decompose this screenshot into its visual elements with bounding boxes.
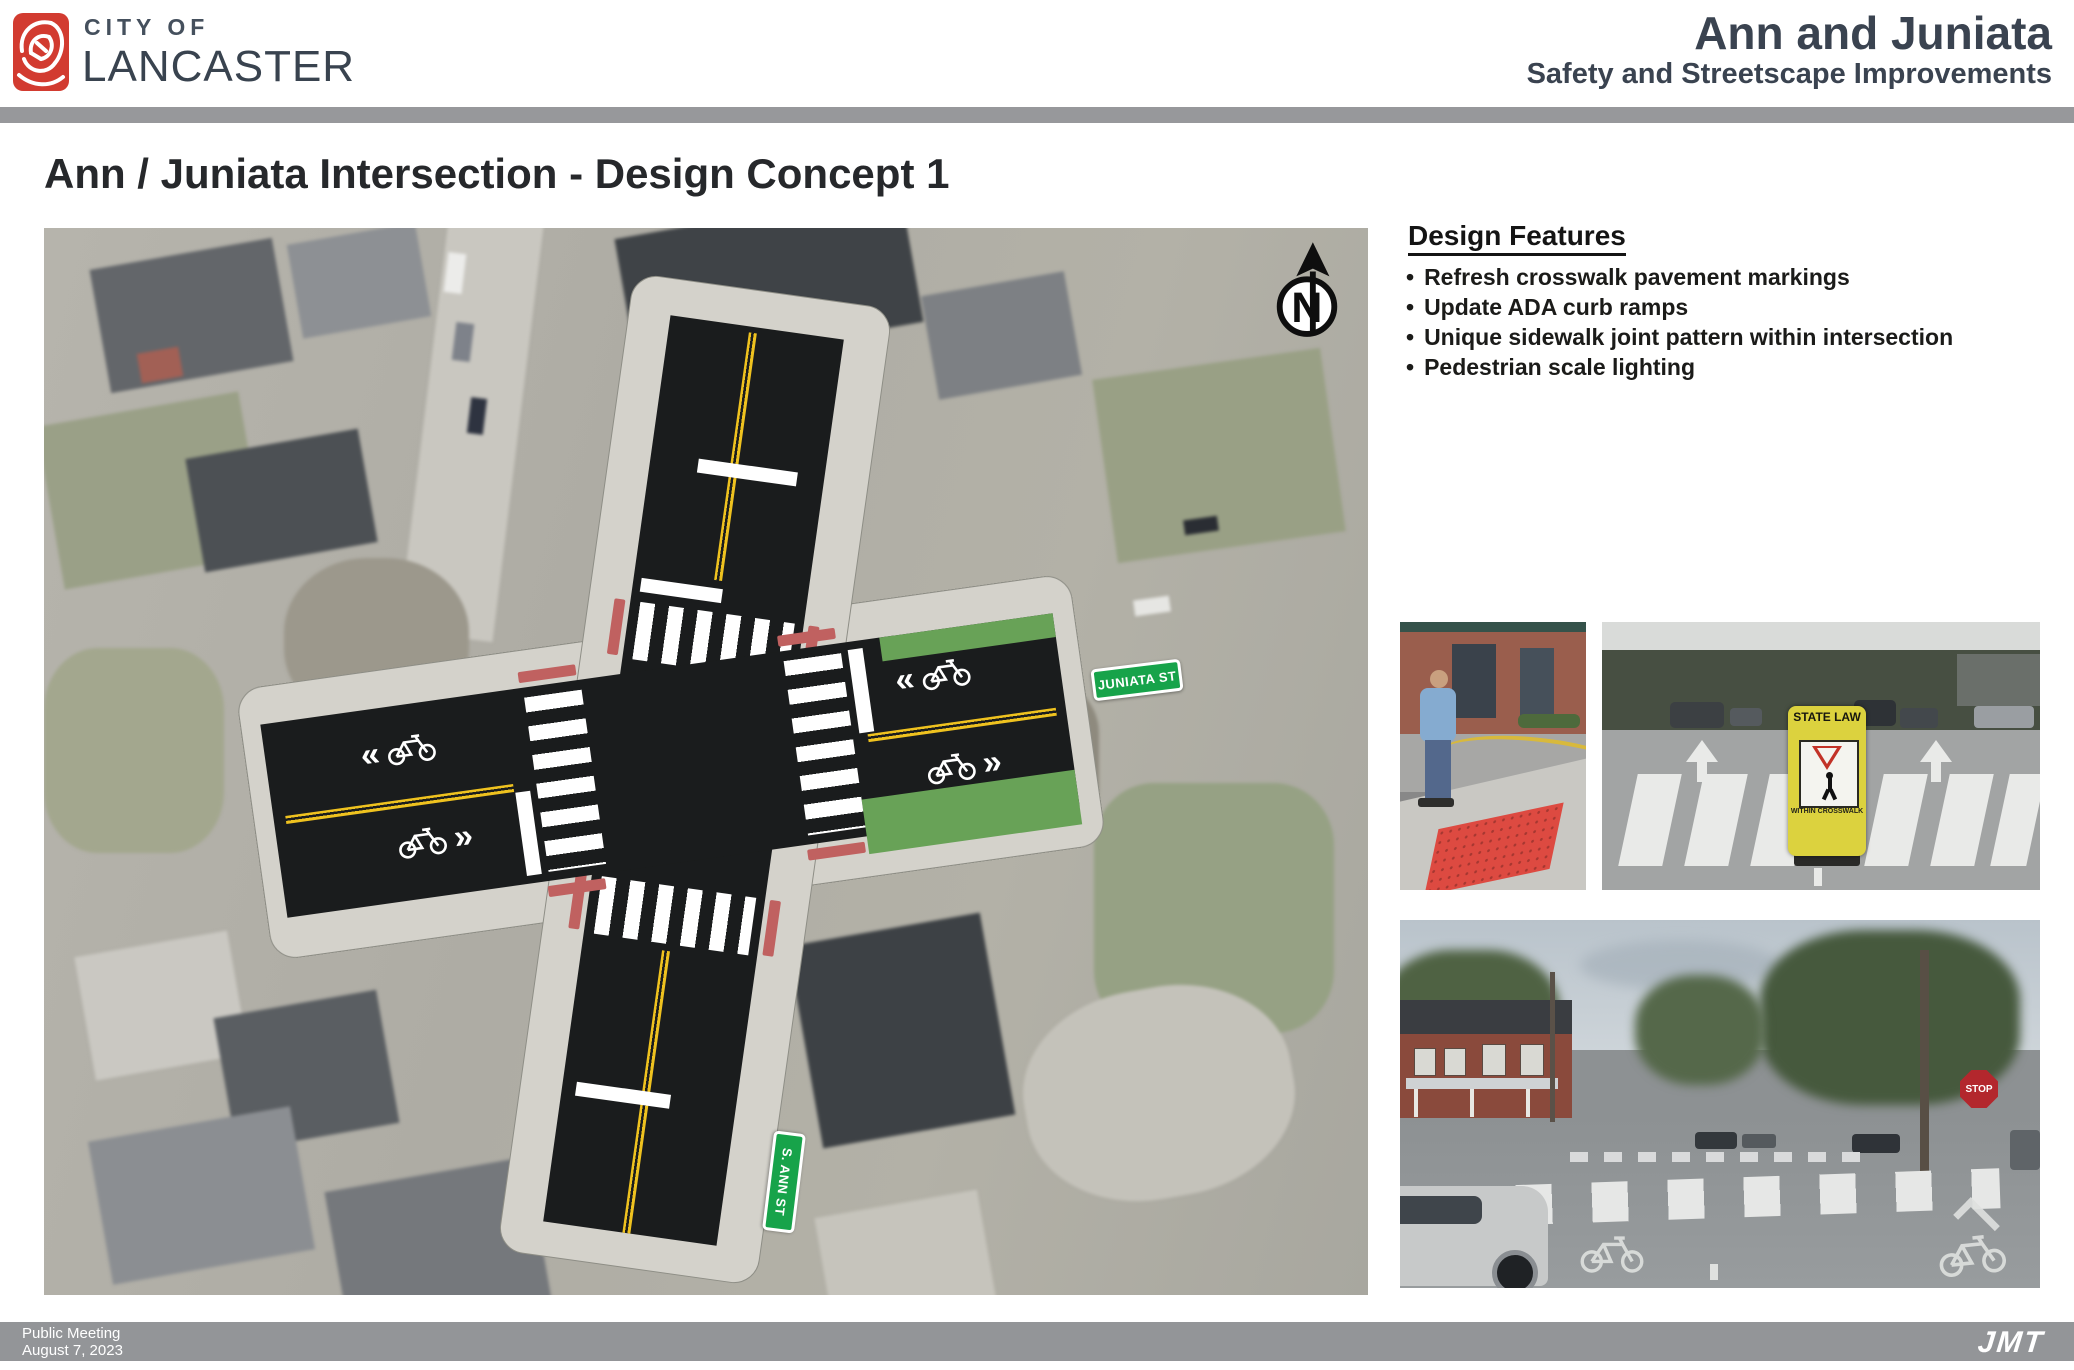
photo-detail-car: [1852, 1134, 1900, 1153]
bike-sharrow-westbound: «: [358, 728, 439, 772]
slide: CITY OF LANCASTER Ann and Juniata Safety…: [0, 0, 2074, 1370]
photo-detail-person: [1430, 670, 1448, 688]
photo-detail-car: [1900, 708, 1938, 728]
footer-meeting-info: Public Meeting August 7, 2023: [22, 1325, 123, 1359]
footer-line2: August 7, 2023: [22, 1342, 123, 1359]
bike-sharrow-icon: [923, 747, 979, 788]
yield-triangle-icon: [1817, 748, 1837, 764]
intersection-street-view-photo: STOP: [1400, 920, 2040, 1288]
photo-detail-pole: [1550, 972, 1555, 1122]
photo-detail-crosswalk-bar: [1990, 774, 2040, 866]
photo-detail-far-crosswalk: [1570, 1152, 1870, 1162]
sign-panel: [1799, 740, 1859, 808]
photo-detail-lane-dash: [1814, 868, 1822, 886]
north-arrow-icon: N: [1268, 242, 1346, 344]
stop-bar: [575, 1082, 671, 1109]
aerial-block: [287, 228, 432, 339]
ada-curb-ramp-photo: [1400, 622, 1586, 890]
bullet-icon: •: [1406, 352, 1414, 382]
bullet-icon: •: [1406, 322, 1414, 352]
photo-detail-window: [1414, 1048, 1436, 1076]
design-feature-item: • Pedestrian scale lighting: [1406, 352, 2046, 382]
bike-sharrow-icon: [394, 822, 450, 863]
photo-detail-car: [2010, 1130, 2040, 1170]
photo-detail-car: [1730, 708, 1762, 726]
photo-detail-window: [1520, 1044, 1544, 1076]
sign-text: STATE LAW: [1788, 711, 1866, 724]
design-feature-item: • Update ADA curb ramps: [1406, 292, 2046, 322]
design-features-list: • Refresh crosswalk pavement markings • …: [1406, 262, 2046, 382]
photo-detail-person: [1420, 688, 1456, 742]
bike-sharrow-icon: [383, 728, 439, 769]
aerial-block: [1133, 596, 1171, 617]
photo-detail-silver-car: [1400, 1196, 1482, 1224]
aerial-block: [88, 1106, 315, 1284]
bullet-icon: •: [1406, 262, 1414, 292]
bike-sharrow-eastbound: »: [394, 818, 475, 862]
stop-bar: [640, 578, 723, 603]
photo-detail-arrow: [1931, 760, 1941, 782]
sign-text: WITHIN CROSSWALK: [1788, 808, 1866, 816]
stop-bar: [697, 459, 798, 487]
photo-detail-arrow: [1920, 740, 1952, 762]
aerial-block: [814, 1190, 998, 1295]
lancaster-rose-logo-icon: [13, 13, 69, 91]
bike-lane-marking-icon: [1578, 1232, 1646, 1276]
photo-detail: [1518, 714, 1580, 728]
brand-lancaster: LANCASTER: [82, 42, 355, 92]
stop-bar: [515, 791, 542, 876]
rose-glyph: [13, 13, 69, 91]
centerline-yellow: [714, 332, 757, 581]
centerline-yellow: [868, 708, 1057, 742]
aerial-block: [788, 913, 1016, 1149]
photo-detail-crosswalk-bar: [1618, 774, 1682, 866]
footer-line1: Public Meeting: [22, 1325, 123, 1342]
photo-detail: [1520, 648, 1554, 716]
photo-detail-pole: [1920, 950, 1929, 1190]
photo-detail-crosswalk-bar: [1864, 774, 1928, 866]
intersection-plan-map: « » « » JUNIATA ST S. ANN ST N: [44, 228, 1368, 1295]
aerial-block: [921, 271, 1082, 400]
jmt-logo: JMT: [1976, 1326, 2046, 1360]
photo-detail-car: [1670, 702, 1724, 728]
aerial-block: [44, 648, 224, 853]
photo-detail-crosswalk-bar: [1684, 774, 1748, 866]
photo-detail-lane-dash: [1710, 1264, 1718, 1280]
design-feature-item: • Refresh crosswalk pavement markings: [1406, 262, 2046, 292]
photo-detail-trees: [1635, 975, 1765, 1085]
design-feature-text: Update ADA curb ramps: [1424, 292, 1688, 322]
photo-detail-person: [1418, 798, 1454, 807]
in-street-pedestrian-sign-photo: STATE LAW WITHIN CROSSWALK: [1602, 622, 2040, 890]
stop-sign-text: STOP: [1965, 1084, 1992, 1095]
chevron-left-icon: «: [893, 661, 916, 697]
design-features-heading: Design Features: [1408, 220, 1626, 256]
photo-detail-porch: [1406, 1078, 1558, 1089]
project-subtitle: Safety and Streetscape Improvements: [1152, 58, 2052, 91]
design-feature-item: • Unique sidewalk joint pattern within i…: [1406, 322, 2046, 352]
chevron-right-icon: »: [452, 818, 475, 854]
photo-detail-window: [1444, 1048, 1466, 1076]
chevron-left-icon: «: [358, 736, 381, 772]
aerial-block: [1092, 348, 1346, 563]
bullet-icon: •: [1406, 292, 1414, 322]
chevron-right-icon: »: [980, 744, 1003, 780]
photo-detail: [1452, 644, 1496, 718]
photo-detail-crosswalk-bar: [1930, 774, 1994, 866]
photo-detail: [1957, 654, 2040, 706]
photo-detail-porch-post: [1414, 1089, 1418, 1117]
brand-city-of: CITY OF: [84, 14, 209, 41]
photo-detail-roof: [1400, 1000, 1572, 1034]
aerial-block: [90, 238, 294, 393]
photo-detail-porch-post: [1470, 1089, 1474, 1117]
pedestrian-icon: [1829, 789, 1837, 801]
bike-sharrow-icon: [918, 653, 974, 694]
bike-sharrow-westbound: «: [893, 653, 974, 697]
photo-detail-arrow: [1686, 740, 1718, 762]
footer-bar: [0, 1322, 2074, 1361]
stop-bar: [848, 648, 875, 733]
photo-detail-car: [1974, 706, 2034, 728]
photo-detail-person: [1425, 740, 1451, 800]
photo-detail: [1400, 622, 1586, 632]
crosswalk-south-leg: [594, 876, 757, 955]
project-title: Ann and Juniata: [1152, 6, 2052, 60]
photo-detail-porch-post: [1526, 1089, 1530, 1117]
design-feature-text: Unique sidewalk joint pattern within int…: [1424, 322, 1953, 352]
photo-detail-wheel: [1492, 1250, 1538, 1288]
design-feature-text: Refresh crosswalk pavement markings: [1424, 262, 1850, 292]
page-title: Ann / Juniata Intersection - Design Conc…: [44, 150, 949, 198]
north-letter: N: [1291, 284, 1322, 332]
header-divider-bar: [0, 107, 2074, 123]
photo-detail-window: [1482, 1044, 1506, 1076]
photo-detail-car: [1742, 1134, 1776, 1148]
state-law-sign: STATE LAW WITHIN CROSSWALK: [1788, 706, 1866, 856]
photo-detail-car: [1695, 1132, 1737, 1149]
bike-lane-marking-icon: [1934, 1228, 2010, 1281]
design-feature-text: Pedestrian scale lighting: [1424, 352, 1695, 382]
centerline-yellow: [285, 784, 514, 824]
